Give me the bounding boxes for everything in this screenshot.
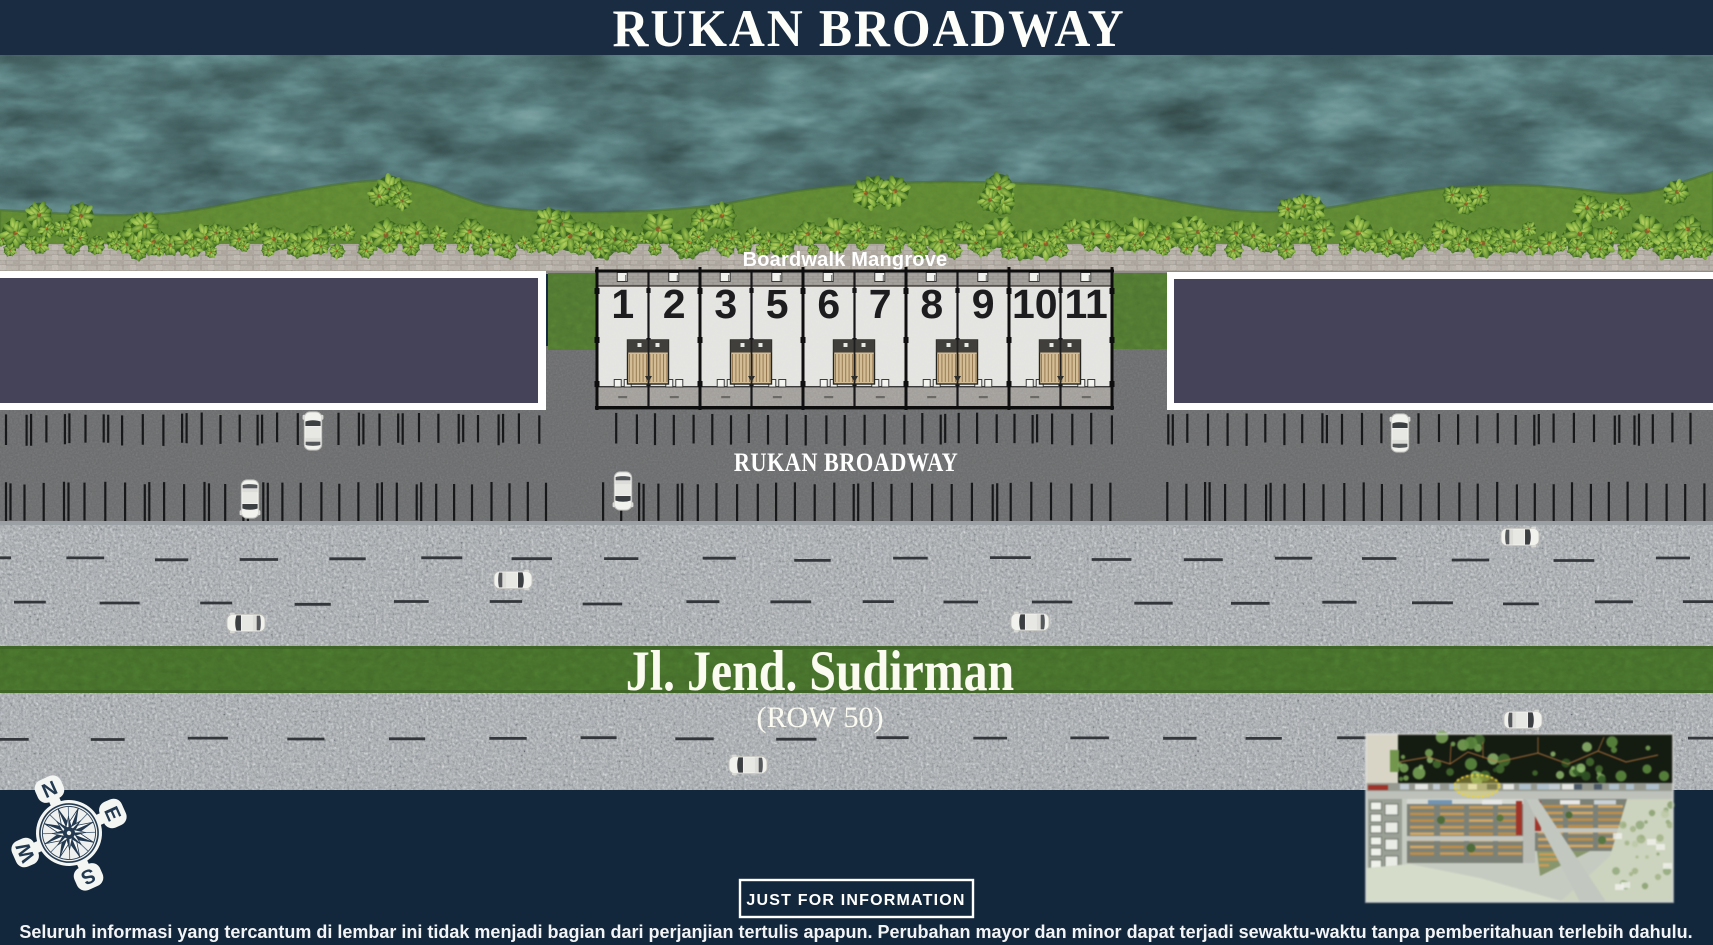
svg-text:5: 5: [766, 281, 789, 327]
svg-text:7: 7: [869, 281, 892, 327]
svg-text:RUKAN BROADWAY: RUKAN BROADWAY: [613, 0, 1126, 58]
svg-text:Seluruh informasi yang tercant: Seluruh informasi yang tercantum di lemb…: [19, 922, 1692, 942]
svg-text:9: 9: [972, 281, 995, 327]
svg-text:3: 3: [714, 281, 737, 327]
svg-text:1: 1: [611, 281, 634, 327]
svg-text:6: 6: [817, 281, 840, 327]
svg-text:Boardwalk Mangrove: Boardwalk Mangrove: [743, 249, 948, 271]
svg-text:RUKAN BROADWAY: RUKAN BROADWAY: [734, 448, 958, 477]
svg-text:11: 11: [1065, 281, 1108, 327]
svg-text:2: 2: [663, 281, 686, 327]
svg-text:(ROW 50): (ROW 50): [757, 701, 884, 734]
svg-text:8: 8: [920, 281, 943, 327]
svg-text:JUST FOR INFORMATION: JUST FOR INFORMATION: [746, 892, 965, 909]
svg-text:10: 10: [1012, 281, 1058, 327]
svg-text:Jl. Jend. Sudirman: Jl. Jend. Sudirman: [626, 640, 1014, 703]
